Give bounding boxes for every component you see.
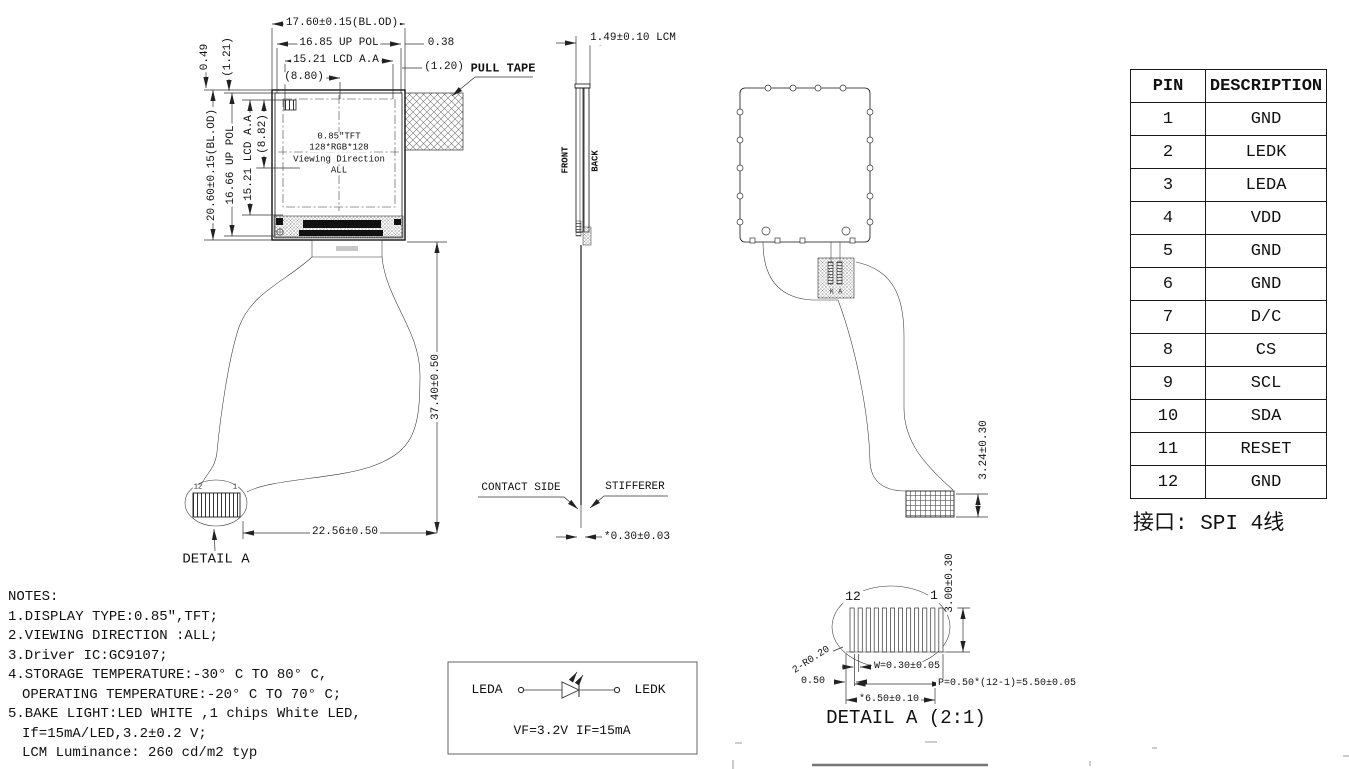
notes-line: If=15mA/LED,3.2±0.2 V; (8, 725, 361, 745)
pin-number: 8 (1131, 334, 1206, 367)
contact-side-leader (478, 497, 578, 509)
dim-label-tip-thickness: *0.30±0.03 (602, 532, 672, 544)
pin-description: VDD (1206, 202, 1326, 235)
pin-table: PIN DESCRIPTION 1GND 2LEDK 3LEDA 4VDD 5G… (1130, 69, 1327, 499)
back-side-label: BACK (591, 148, 600, 174)
led-box-border (448, 662, 697, 754)
front-view (185, 24, 533, 551)
pin-description: GND (1206, 235, 1326, 268)
pin-number: 12 (1131, 466, 1206, 498)
dim-label-overall-width: 17.60±0.15(BL.OD) (284, 18, 400, 30)
corner-marker (284, 100, 296, 110)
pin-number: 4 (1131, 202, 1206, 235)
detail-dim-height: 3.00±0.30 (945, 551, 957, 614)
pin-number: 3 (1131, 169, 1206, 202)
dim-label-flex-length: 37.40±0.50 (431, 352, 443, 422)
pin-description: GND (1206, 268, 1326, 301)
driver-ic-bar (303, 220, 381, 228)
pin-description: RESET (1206, 433, 1326, 466)
detail-dim-pin-width: W=0.30±0.05 (872, 662, 942, 673)
pin-number: 10 (1131, 400, 1206, 433)
pin-description: GND (1206, 103, 1326, 136)
pin-number: 5 (1131, 235, 1206, 268)
pin-number: 1 (1131, 103, 1206, 136)
back-connector (906, 491, 954, 517)
detail-a-arrow (214, 529, 215, 551)
front-side-label: FRONT (561, 144, 570, 175)
side-panel-back (584, 88, 589, 232)
pin-number: 7 (1131, 301, 1206, 334)
led-circuit-box (448, 662, 697, 754)
cutoff-marks (733, 742, 1349, 769)
dim-label-center-y: (8.82) (258, 112, 270, 156)
pin-description: CS (1206, 334, 1326, 367)
contact-side-label: CONTACT SIDE (479, 483, 562, 495)
led-spec-label: VF=3.2V IF=15mA (511, 724, 632, 738)
edge-notches (737, 85, 873, 243)
pin-number: 2 (1131, 136, 1206, 169)
detail-a-label: DETAIL A (180, 553, 251, 568)
detail-dim-pitch: P=0.50*(12-1)=5.50±0.05 (936, 679, 1078, 690)
side-panel-front (576, 88, 583, 232)
fpc-connector (193, 493, 240, 517)
interface-note: 接口: SPI 4线 (1133, 506, 1284, 536)
connector-pin12-label: 12 (193, 484, 203, 491)
pull-tape-leader (452, 77, 533, 96)
screen-spec-line3: Viewing Direction (291, 155, 387, 164)
detail-dim-total: *6.50±0.10 (857, 695, 921, 706)
pin-table-header-pin: PIN (1131, 70, 1206, 103)
led-pad-marks: K A (829, 289, 844, 296)
dim-label-pol-width: 16.85 UP POL (297, 38, 380, 50)
pin-description: D/C (1206, 301, 1326, 334)
led-chip (828, 262, 833, 284)
dim-label-connector-height: 3.24±0.30 (979, 418, 991, 481)
led-anode-label: LEDA (469, 683, 504, 697)
screen-spec-line2: 128*RGB*128 (307, 143, 370, 152)
back-flex-right (856, 262, 953, 490)
notes-line: 3.Driver IC:GC9107; (8, 647, 361, 667)
pin-description: SCL (1206, 367, 1326, 400)
connector-pin1-label: 1 (232, 484, 238, 491)
dim-label-gap-top2: (1.21) (223, 35, 235, 79)
back-view (737, 85, 988, 517)
led-cathode-terminal (614, 687, 619, 692)
led-chip (837, 262, 842, 284)
pin-number: 9 (1131, 367, 1206, 400)
pin-description: LEDK (1206, 136, 1326, 169)
pin-description: LEDA (1206, 169, 1326, 202)
notes-line: OPERATING TEMPERATURE:-20° C TO 70° C; (8, 686, 361, 706)
stiffener-label: STIFFERER (603, 482, 666, 494)
detail-a-title: DETAIL A (2:1) (824, 709, 988, 729)
flex-left-edge (200, 257, 312, 487)
detail-dim-edge: 0.50 (799, 677, 827, 688)
pin-number: 6 (1131, 268, 1206, 301)
dim-label-gap-right2: (1.20) (422, 62, 466, 74)
notes-line: LCM Luminance: 260 cd/m2 typ (8, 744, 361, 764)
engineering-drawing-sheet: .dim{stroke:#333;stroke-width:0.7;fill:n… (0, 0, 1349, 769)
notes-line: 4.STORAGE TEMPERATURE:-30° C TO 80° C, (8, 666, 361, 686)
dim-label-aa-width: 15.21 LCD A.A (291, 55, 381, 67)
back-flex-left (838, 300, 906, 491)
notes-block: NOTES: 1.DISPLAY TYPE:0.85″,TFT; 2.VIEWI… (8, 588, 361, 764)
pull-tape-shape (405, 93, 463, 150)
notes-line: 1.DISPLAY TYPE:0.85″,TFT; (8, 608, 361, 628)
dim-label-pol-height: 16.66 UP POL (226, 123, 238, 206)
detail-pins (850, 608, 943, 652)
dim-label-aa-height: 15.21 LCD A.A (244, 113, 256, 203)
dim-label-overall-height: 20.60±0.15(BL.OD) (207, 107, 219, 223)
pull-tape-label: PULL TAPE (469, 63, 538, 76)
stiffener-leader (590, 496, 668, 508)
flex-right-edge (247, 257, 420, 492)
dim-label-flex-width: 22.56±0.50 (310, 527, 380, 539)
screen-spec-line1: 0.85"TFT (315, 132, 362, 141)
led-cathode-label: LEDK (632, 683, 667, 697)
detail-pin12-label: 12 (843, 590, 863, 604)
dim-label-gap-top: 0.49 (200, 42, 212, 72)
notes-line: 5.BAKE LIGHT:LED WHITE ,1 chips White LE… (8, 705, 361, 725)
notes-line: NOTES: (8, 588, 361, 608)
pin-description: GND (1206, 466, 1326, 498)
led-anode-terminal (518, 687, 523, 692)
screen-spec-line4: ALL (329, 166, 349, 175)
pin-description: SDA (1206, 400, 1326, 433)
side-view (478, 36, 668, 537)
detail-pin1-label: 1 (928, 589, 940, 603)
back-outline (740, 88, 870, 242)
dim-label-thickness: 1.49±0.10 LCM (588, 33, 678, 45)
pin-number: 11 (1131, 433, 1206, 466)
dim-label-center-x: (8.80) (282, 72, 326, 84)
dim-label-gap-right: 0.38 (426, 38, 456, 50)
pin-table-header-description: DESCRIPTION (1206, 70, 1326, 103)
notes-line: 2.VIEWING DIRECTION :ALL; (8, 627, 361, 647)
